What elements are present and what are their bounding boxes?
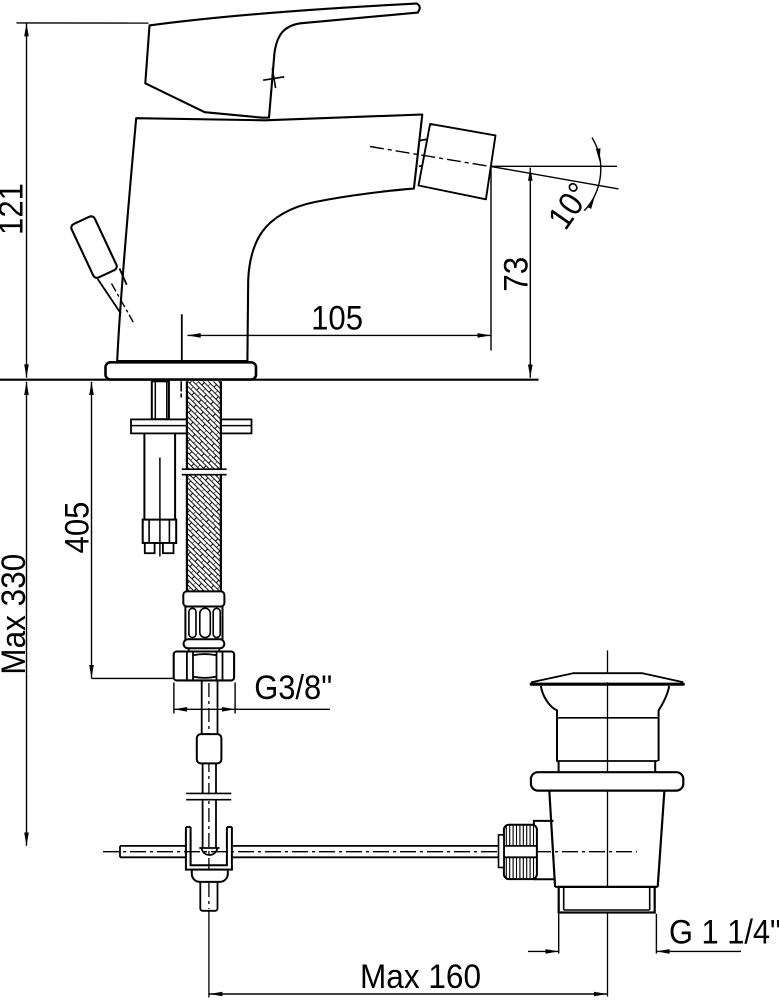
svg-text:105: 105	[311, 299, 363, 337]
svg-text:G3/8": G3/8"	[254, 669, 332, 707]
svg-text:73: 73	[497, 257, 535, 292]
svg-text:Max 160: Max 160	[360, 958, 481, 996]
svg-text:G 1 1/4": G 1 1/4"	[669, 914, 779, 952]
svg-text:121: 121	[0, 183, 31, 235]
svg-text:Max 330: Max 330	[0, 554, 33, 675]
svg-text:405: 405	[58, 502, 96, 554]
